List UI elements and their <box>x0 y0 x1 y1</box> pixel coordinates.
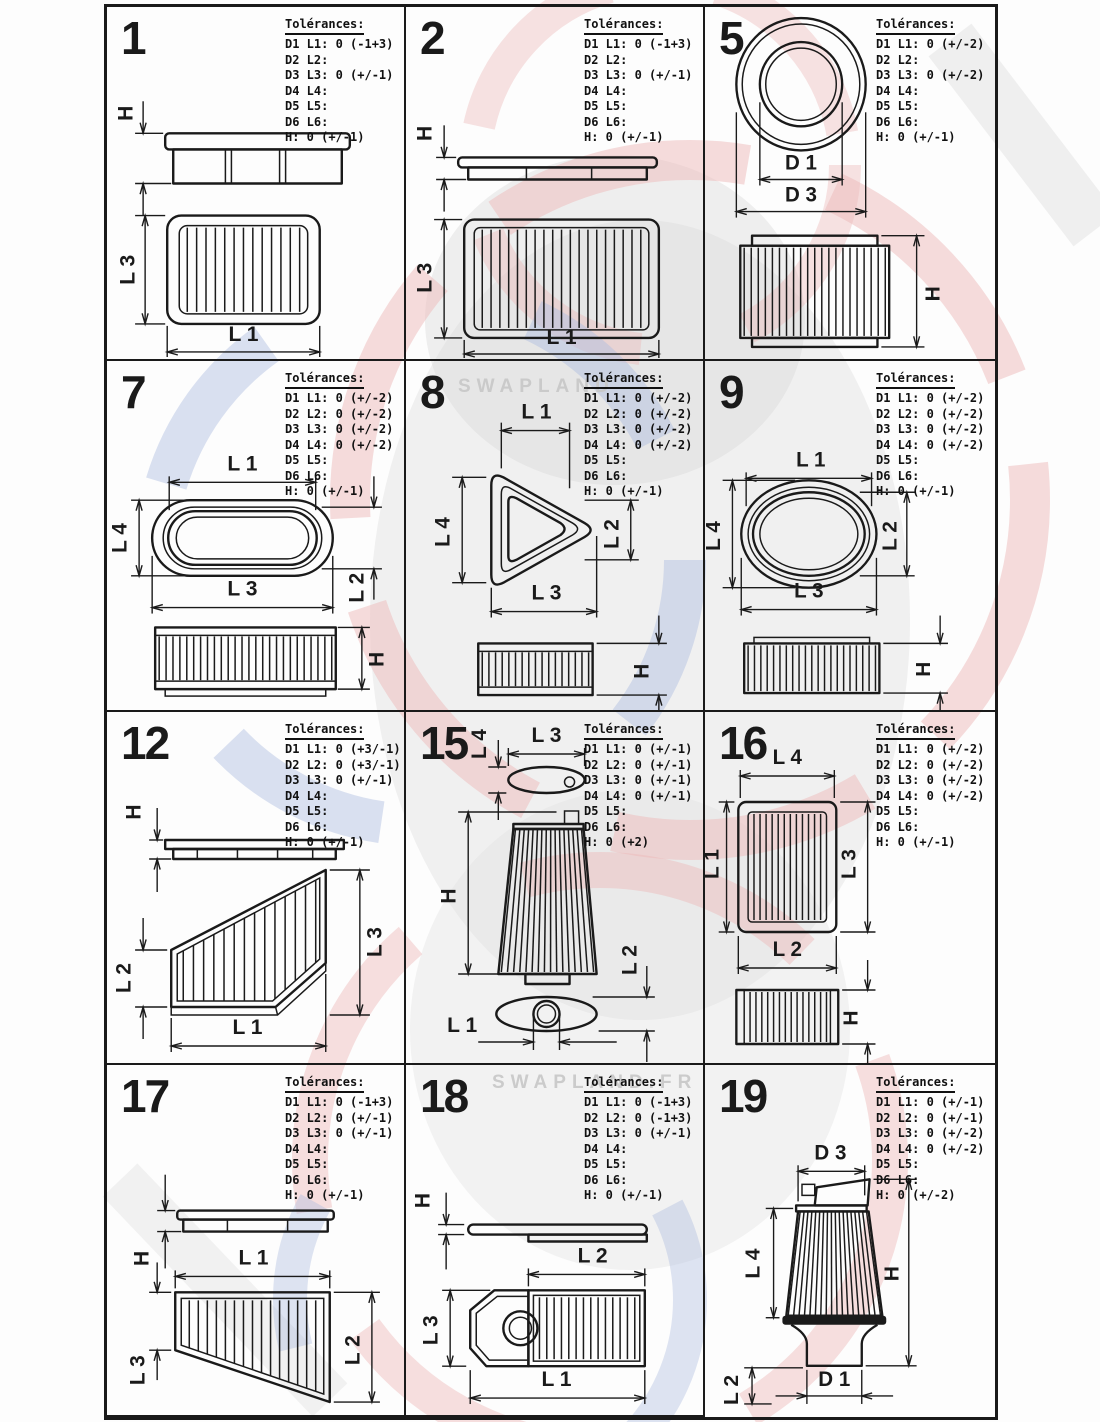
tolerance-row: D6 L6: <box>876 469 992 485</box>
side-view <box>744 637 879 693</box>
dim-label-l1: L 1 <box>547 326 577 349</box>
tolerance-row: H: 0 (+/-1) <box>285 484 401 500</box>
filter-type-number: 2 <box>420 11 444 65</box>
tolerance-row: D2 L2: 0 (+/-2) <box>876 758 992 774</box>
pleats <box>183 872 315 1004</box>
bottom-view <box>496 997 596 1031</box>
pleats <box>187 228 299 312</box>
tolerance-row: D2 L2: 0 (+3/-1) <box>285 758 401 774</box>
tolerance-row: D3 L3: 0 (+/-2) <box>285 422 401 438</box>
tolerance-rows: D1 L1: 0 (-1+3)D2 L2: 0 (+/-1)D3 L3: 0 (… <box>285 1095 401 1204</box>
tolerance-table: Tolérances: D1 L1: 0 (+/-2)D2 L2: 0 (+/-… <box>876 718 992 851</box>
dim-label-l4: L 4 <box>432 517 455 547</box>
dim-label-l2: L 2 <box>578 1244 608 1267</box>
tolerance-title: Tolérances: <box>584 722 663 740</box>
tolerance-row: H: 0 (+/-1) <box>876 835 992 851</box>
dim-h: H <box>840 960 876 1063</box>
tolerance-table: Tolérances: D1 L1: 0 (-1+3)D2 L2: 0 (+/-… <box>285 1071 401 1204</box>
dim-label-l2: L 2 <box>720 1375 743 1405</box>
dim-label-l1: L 1 <box>447 1014 477 1037</box>
dim-l3: L 3 <box>330 870 387 1015</box>
tolerance-row: D5 L5: <box>876 453 992 469</box>
main-view <box>171 870 326 1015</box>
dim-h: H <box>115 101 172 215</box>
tolerance-row: D3 L3: 0 (+/-2) <box>876 68 992 84</box>
side-view <box>155 627 336 696</box>
dim-label-l3: L 3 <box>363 927 386 957</box>
dim-label-d3: D 3 <box>814 1141 846 1164</box>
tolerance-row: D3 L3: 0 (+/-2) <box>876 422 992 438</box>
dim-l1: L 1 <box>167 323 320 357</box>
dim-label-l3: L 3 <box>227 578 257 601</box>
tolerance-row: D4 L4: <box>876 84 992 100</box>
filter-spec-sheet: 1 Tolérances: D1 L1: 0 (-1+3)D2 L2:D3 L3… <box>104 4 998 1420</box>
tolerance-row: D5 L5: <box>584 804 700 820</box>
tolerance-rows: D1 L1: 0 (+/-2)D2 L2: 0 (+/-2)D3 L3: 0 (… <box>584 391 700 500</box>
tolerance-table: Tolérances: D1 L1: 0 (+/-2)D2 L2: 0 (+/-… <box>876 367 992 500</box>
cell-type-16: 16 Tolérances: D1 L1: 0 (+/-2)D2 L2: 0 (… <box>705 712 995 1065</box>
tolerance-row: D6 L6: <box>584 1173 700 1189</box>
tolerance-title: Tolérances: <box>876 17 955 35</box>
tolerance-title: Tolérances: <box>584 371 663 389</box>
tolerance-rows: D1 L1: 0 (+/-2)D2 L2: 0 (+/-2)D3 L3: 0 (… <box>876 391 992 500</box>
filter-type-number: 18 <box>420 1069 467 1123</box>
dim-label-h: H <box>840 1010 863 1025</box>
tolerance-title: Tolérances: <box>876 371 955 389</box>
tolerance-table: Tolérances: D1 L1: 0 (+3/-1)D2 L2: 0 (+3… <box>285 718 401 851</box>
cell-type-17: 17 Tolérances: D1 L1: 0 (-1+3)D2 L2: 0 (… <box>107 1065 406 1417</box>
tolerance-row: D2 L2: 0 (+/-2) <box>876 407 992 423</box>
dim-l3: L 3 <box>508 724 584 766</box>
dim-l4: L 4 <box>468 729 507 820</box>
dim-label-l3: L 3 <box>127 1355 150 1385</box>
tolerance-row: D2 L2: <box>584 53 700 69</box>
pleats <box>159 636 332 680</box>
dim-l1: L 1 <box>447 1014 617 1050</box>
pleats <box>754 814 821 920</box>
tolerance-row: D3 L3: 0 (+/-1) <box>584 68 700 84</box>
tolerance-table: Tolérances: D1 L1: 0 (-1+3)D2 L2:D3 L3: … <box>584 13 700 146</box>
tolerance-row: H: 0 (+/-2) <box>876 1188 992 1204</box>
pleats <box>744 248 885 336</box>
tolerance-table: Tolérances: D1 L1: 0 (+/-1)D2 L2: 0 (+/-… <box>876 1071 992 1204</box>
tolerance-row: D3 L3: 0 (+/-2) <box>876 1126 992 1142</box>
tolerance-row: D5 L5: <box>285 804 401 820</box>
dim-label-l3: L 3 <box>414 263 437 293</box>
dim-d1: D 1 <box>776 1368 894 1404</box>
dim-h: H <box>131 1175 182 1269</box>
tolerance-row: H: 0 (+/-1) <box>584 1188 700 1204</box>
dim-label-l1: L 1 <box>796 448 825 471</box>
dim-l1: L 1 <box>470 1368 645 1404</box>
tolerance-title: Tolérances: <box>285 371 364 389</box>
tolerance-row: D1 L1: 0 (+/-2) <box>285 391 401 407</box>
cell-type-9: 9 Tolérances: D1 L1: 0 (+/-2)D2 L2: 0 (+… <box>705 361 995 712</box>
tolerance-rows: D1 L1: 0 (+/-2)D2 L2: 0 (+/-2)D3 L3: 0 (… <box>285 391 401 500</box>
dim-label-l1: L 1 <box>227 452 257 475</box>
dim-l3: L 3 <box>491 536 596 618</box>
dim-label-d1: D 1 <box>785 151 817 174</box>
tolerance-row: H: 0 (+/-1) <box>876 130 992 146</box>
tolerance-row: D1 L1: 0 (-1+3) <box>584 1095 700 1111</box>
dim-l3: L 3 <box>838 802 876 932</box>
dim-label-h: H <box>131 1251 154 1266</box>
cell-type-8: 8 Tolérances: D1 L1: 0 (+/-2)D2 L2: 0 (+… <box>406 361 705 712</box>
tolerance-row: D5 L5: <box>285 99 401 115</box>
dim-h: H <box>338 627 389 689</box>
tolerance-row: D4 L4: 0 (+/-2) <box>584 438 700 454</box>
dim-l1: L 1 <box>464 326 659 358</box>
side-view <box>177 1211 334 1232</box>
tolerance-row: H: 0 (+/-1) <box>876 484 992 500</box>
filter-type-number: 9 <box>719 365 743 419</box>
dim-h: H <box>414 125 467 211</box>
tolerance-title: Tolérances: <box>285 722 364 740</box>
dim-d3: D 3 <box>798 1141 865 1201</box>
tolerance-row: D5 L5: <box>876 1157 992 1173</box>
tolerance-row: D6 L6: <box>584 820 700 836</box>
dim-label-h: H <box>414 126 437 141</box>
cell-type-15: 15 Tolérances: D1 L1: 0 (+/-1)D2 L2: 0 (… <box>406 712 705 1065</box>
tolerance-rows: D1 L1: 0 (+/-1)D2 L2: 0 (+/-1)D3 L3: 0 (… <box>584 742 700 851</box>
dim-l1: L 1 <box>171 974 326 1052</box>
tolerance-row: D2 L2: 0 (+/-1) <box>876 1111 992 1127</box>
tolerance-table: Tolérances: D1 L1: 0 (+/-1)D2 L2: 0 (+/-… <box>584 718 700 851</box>
dim-l2: L 2 <box>334 1292 380 1402</box>
pleats <box>501 830 593 972</box>
dim-l3: L 3 <box>127 1262 172 1385</box>
dim-h: H <box>597 616 667 710</box>
dim-label-l4: L 4 <box>773 746 803 769</box>
dim-label-l1: L 1 <box>541 1368 571 1391</box>
dim-label-h: H <box>922 286 945 301</box>
dim-l4: L 4 <box>432 477 487 582</box>
tolerance-row: D6 L6: <box>876 115 992 131</box>
tolerance-row: H: 0 (+/-1) <box>285 835 401 851</box>
dim-label-l3: L 3 <box>420 1315 443 1345</box>
tolerance-title: Tolérances: <box>584 17 663 35</box>
tolerance-row: D3 L3: 0 (+/-1) <box>285 1126 401 1142</box>
filter-type-number: 19 <box>719 1069 766 1123</box>
top-view <box>736 18 865 150</box>
dim-l3: L 3 <box>117 216 166 324</box>
tolerance-row: D4 L4: 0 (+/-2) <box>285 438 401 454</box>
tolerance-row: D5 L5: <box>584 453 700 469</box>
tolerance-row: D1 L1: 0 (-1+3) <box>285 37 401 53</box>
dim-l2: L 2 <box>860 492 915 576</box>
side-view <box>478 643 592 695</box>
tolerance-table: Tolérances: D1 L1: 0 (+/-2)D2 L2: 0 (+/-… <box>285 367 401 500</box>
dim-label-l3: L 3 <box>531 582 561 605</box>
dim-label-h: H <box>438 888 461 903</box>
side-view <box>458 157 657 179</box>
tolerance-row: D5 L5: <box>584 1157 700 1173</box>
tolerance-row: D4 L4: <box>584 84 700 100</box>
tolerance-row: D2 L2: <box>876 53 992 69</box>
pleats <box>189 1300 315 1394</box>
top-view <box>167 216 320 324</box>
top-view <box>491 476 590 585</box>
side-view <box>740 236 889 347</box>
tolerance-title: Tolérances: <box>285 17 364 35</box>
tolerance-row: D4 L4: <box>285 789 401 805</box>
dim-label-l2: L 2 <box>600 519 623 549</box>
tolerance-row: D6 L6: <box>876 820 992 836</box>
tolerance-row: D4 L4: 0 (+/-2) <box>876 789 992 805</box>
tolerance-row: D4 L4: <box>285 84 401 100</box>
tolerance-row: D1 L1: 0 (-1+3) <box>285 1095 401 1111</box>
tolerance-title: Tolérances: <box>876 1075 955 1093</box>
top-view <box>738 802 836 932</box>
dim-h: H <box>883 616 948 710</box>
tolerance-row: D2 L2: 0 (+/-1) <box>285 1111 401 1127</box>
pleats <box>482 652 588 686</box>
tolerance-row: D4 L4: <box>285 1142 401 1158</box>
tolerance-row: D4 L4: 0 (+/-1) <box>584 789 700 805</box>
top-view <box>508 767 584 793</box>
main-view <box>782 1179 886 1366</box>
tolerance-row: D3 L3: 0 (+/-2) <box>584 422 700 438</box>
dim-label-h: H <box>881 1266 904 1281</box>
cell-type-19: 19 Tolérances: D1 L1: 0 (+/-1)D2 L2: 0 (… <box>705 1065 995 1417</box>
main-view <box>498 811 596 984</box>
pleats <box>539 1297 634 1359</box>
filter-type-number: 1 <box>121 11 145 65</box>
pleats <box>788 1212 880 1314</box>
tolerance-row: D1 L1: 0 (+/-2) <box>876 37 992 53</box>
tolerance-rows: D1 L1: 0 (-1+3)D2 L2: 0 (-1+3)D3 L3: 0 (… <box>584 1095 700 1204</box>
dim-label-l4: L 4 <box>742 1248 765 1278</box>
tolerance-row: D2 L2: 0 (+/-2) <box>584 407 700 423</box>
tolerance-row: D6 L6: <box>285 115 401 131</box>
tolerance-row: D3 L3: 0 (+/-1) <box>285 773 401 789</box>
dim-label-l1: L 1 <box>232 1016 262 1039</box>
tolerance-row: D5 L5: <box>876 804 992 820</box>
dim-label-l3: L 3 <box>531 724 561 747</box>
dim-label-l2: L 2 <box>879 521 902 551</box>
dim-label-h: H <box>115 106 138 121</box>
dim-label-l2: L 2 <box>341 1335 364 1365</box>
pleats <box>748 645 875 691</box>
dim-l1: L 1 <box>175 1246 330 1288</box>
tolerance-row: H: 0 (+/-1) <box>285 1188 401 1204</box>
dim-label-l4: L 4 <box>705 521 725 551</box>
tolerance-row: D2 L2: 0 (+/-2) <box>285 407 401 423</box>
dim-l3: L 3 <box>414 220 463 338</box>
pleats <box>482 230 641 328</box>
tolerance-row: H: 0 (+/-1) <box>584 130 700 146</box>
dim-l2: L 2 <box>113 918 168 1039</box>
top-view <box>741 480 876 587</box>
dim-l2: L 2 <box>593 945 655 1062</box>
tolerance-rows: D1 L1: 0 (-1+3)D2 L2:D3 L3: 0 (+/-1)D4 L… <box>584 37 700 146</box>
main-view <box>470 1290 645 1366</box>
dim-label-l1: L 1 <box>521 401 551 424</box>
tolerance-rows: D1 L1: 0 (+/-1)D2 L2: 0 (+/-1)D3 L3: 0 (… <box>876 1095 992 1204</box>
tolerance-rows: D1 L1: 0 (+/-2)D2 L2:D3 L3: 0 (+/-2)D4 L… <box>876 37 992 146</box>
tolerance-table: Tolérances: D1 L1: 0 (+/-2)D2 L2:D3 L3: … <box>876 13 992 146</box>
dim-h: H <box>866 1179 917 1366</box>
dim-label-l1: L 1 <box>228 323 258 346</box>
tolerance-table: Tolérances: D1 L1: 0 (-1+3)D2 L2:D3 L3: … <box>285 13 401 146</box>
filter-type-number: 8 <box>420 365 444 419</box>
tolerance-title: Tolérances: <box>285 1075 364 1093</box>
cell-type-7: 7 Tolérances: D1 L1: 0 (+/-2)D2 L2: 0 (+… <box>107 361 406 712</box>
main-view <box>175 1292 330 1402</box>
cell-type-5: 5 Tolérances: D1 L1: 0 (+/-2)D2 L2:D3 L3… <box>705 7 995 361</box>
tolerance-row: D3 L3: 0 (+/-2) <box>876 773 992 789</box>
dim-label-h: H <box>365 652 388 667</box>
tolerance-row: D6 L6: <box>285 469 401 485</box>
tolerance-row: D2 L2: 0 (+/-1) <box>584 758 700 774</box>
tolerance-row: H: 0 (+2) <box>584 835 700 851</box>
dim-h: H <box>123 804 172 892</box>
tolerance-rows: D1 L1: 0 (+3/-1)D2 L2: 0 (+3/-1)D3 L3: 0… <box>285 742 401 851</box>
filter-type-number: 16 <box>719 716 766 770</box>
tolerance-row: D1 L1: 0 (+/-2) <box>876 391 992 407</box>
tolerance-row: D4 L4: <box>584 1142 700 1158</box>
cell-type-18: 18 Tolérances: D1 L1: 0 (-1+3)D2 L2: 0 (… <box>406 1065 705 1417</box>
filter-type-number: 12 <box>121 716 168 770</box>
tolerance-row: H: 0 (+/-1) <box>285 130 401 146</box>
top-view <box>152 500 333 576</box>
pleats <box>750 992 826 1042</box>
dim-label-l1: L 1 <box>238 1246 268 1269</box>
dim-label-d3: D 3 <box>785 183 817 206</box>
tolerance-rows: D1 L1: 0 (-1+3)D2 L2:D3 L3: 0 (+/-1)D4 L… <box>285 37 401 146</box>
tolerance-row: D1 L1: 0 (+/-1) <box>876 1095 992 1111</box>
cell-type-12: 12 Tolérances: D1 L1: 0 (+3/-1)D2 L2: 0 … <box>107 712 406 1065</box>
tolerance-table: Tolérances: D1 L1: 0 (-1+3)D2 L2: 0 (-1+… <box>584 1071 700 1204</box>
dim-l2: L 2 <box>720 1368 803 1405</box>
tolerance-row: D1 L1: 0 (+/-1) <box>584 742 700 758</box>
dim-l1: L 1 <box>501 401 569 489</box>
tolerance-row: D5 L5: <box>584 99 700 115</box>
dim-label-l3: L 3 <box>794 580 823 603</box>
tolerance-row: D1 L1: 0 (+3/-1) <box>285 742 401 758</box>
dim-l4: L 4 <box>742 1208 794 1317</box>
filter-type-number: 5 <box>719 11 743 65</box>
tolerance-row: H: 0 (+/-1) <box>584 484 700 500</box>
side-view <box>468 1225 647 1242</box>
side-view <box>736 990 838 1044</box>
tolerance-row: D6 L6: <box>285 1173 401 1189</box>
tolerance-row: D1 L1: 0 (+/-2) <box>584 391 700 407</box>
dim-h: H <box>881 236 944 347</box>
cell-type-2: 2 Tolérances: D1 L1: 0 (-1+3)D2 L2:D3 L3… <box>406 7 705 361</box>
tolerance-table: Tolérances: D1 L1: 0 (+/-2)D2 L2: 0 (+/-… <box>584 367 700 500</box>
tolerance-row: D6 L6: <box>584 469 700 485</box>
dim-label-l2: L 2 <box>113 963 136 993</box>
tolerance-row: D2 L2: <box>285 53 401 69</box>
tolerance-title: Tolérances: <box>876 722 955 740</box>
dim-label-h: H <box>412 1193 435 1208</box>
dim-label-h: H <box>630 664 653 679</box>
filter-type-number: 15 <box>420 716 467 770</box>
cell-type-1: 1 Tolérances: D1 L1: 0 (-1+3)D2 L2:D3 L3… <box>107 7 406 361</box>
tolerance-row: D1 L1: 0 (-1+3) <box>584 37 700 53</box>
tolerance-row: D5 L5: <box>285 1157 401 1173</box>
tolerance-row: D3 L3: 0 (+/-1) <box>584 773 700 789</box>
tolerance-row: D4 L4: 0 (+/-2) <box>876 1142 992 1158</box>
dim-label-l2: L 2 <box>618 945 641 975</box>
dim-l2: L 2 <box>528 1244 644 1286</box>
dim-label-l3: L 3 <box>117 255 140 285</box>
dim-label-l4: L 4 <box>468 729 491 759</box>
dim-h: H <box>412 1193 465 1270</box>
filter-type-number: 17 <box>121 1069 168 1123</box>
dim-l1: L 1 <box>705 802 734 932</box>
tolerance-rows: D1 L1: 0 (+/-2)D2 L2: 0 (+/-2)D3 L3: 0 (… <box>876 742 992 851</box>
dim-label-l4: L 4 <box>109 523 132 553</box>
dim-label-l2: L 2 <box>773 938 802 961</box>
tolerance-row: D3 L3: 0 (+/-1) <box>584 1126 700 1142</box>
tolerance-row: D5 L5: <box>285 453 401 469</box>
dim-label-l1: L 1 <box>705 849 723 879</box>
dim-l2: L 2 <box>585 500 639 560</box>
dim-l3: L 3 <box>741 558 876 616</box>
top-view <box>464 220 659 338</box>
filter-type-number: 7 <box>121 365 145 419</box>
tolerance-title: Tolérances: <box>584 1075 663 1093</box>
dim-label-l2: L 2 <box>345 573 368 603</box>
tolerance-row: D6 L6: <box>584 115 700 131</box>
tolerance-row: D4 L4: 0 (+/-2) <box>876 438 992 454</box>
tolerance-row: D3 L3: 0 (+/-1) <box>285 68 401 84</box>
tolerance-row: D6 L6: <box>285 820 401 836</box>
tolerance-row: D6 L6: <box>876 1173 992 1189</box>
tolerance-row: D1 L1: 0 (+/-2) <box>876 742 992 758</box>
dim-l2: L 2 <box>738 936 836 974</box>
tolerance-row: D5 L5: <box>876 99 992 115</box>
dim-label-h: H <box>912 662 935 677</box>
tolerance-row: D2 L2: 0 (-1+3) <box>584 1111 700 1127</box>
dim-label-d1: D 1 <box>818 1368 850 1391</box>
dim-label-h: H <box>123 804 146 819</box>
dim-label-l3: L 3 <box>838 849 861 879</box>
